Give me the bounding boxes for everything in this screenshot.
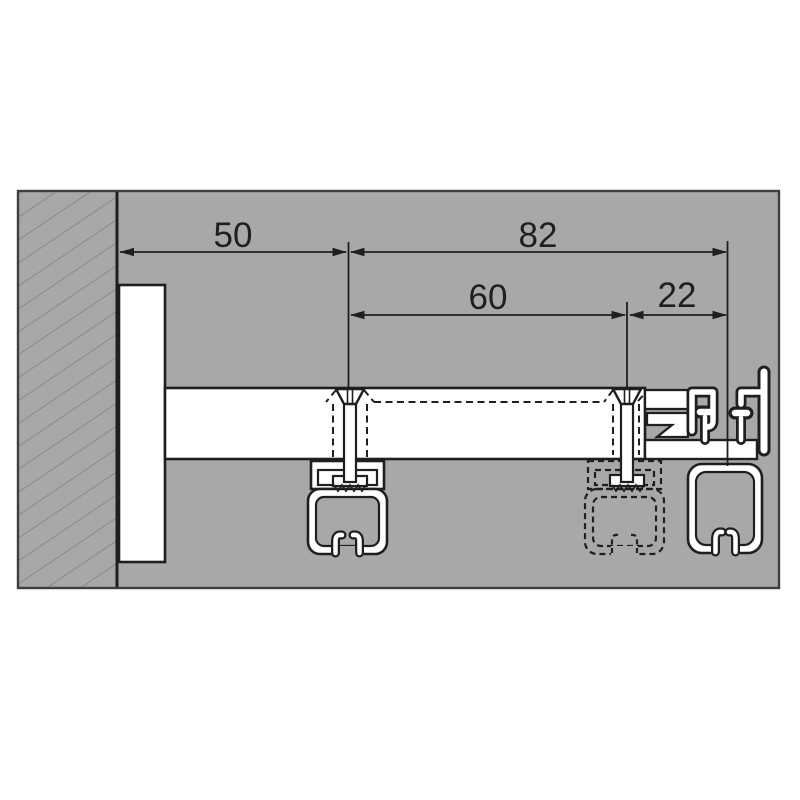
end-carrier-channel [688,464,762,556]
support-arm [165,388,645,459]
dim-label-60: 60 [469,278,508,317]
hatched-wall [19,192,117,587]
dim-label-22: 22 [658,276,697,315]
dim-label-82: 82 [519,216,558,255]
technical-drawing-page: 50 82 60 22 [0,0,800,800]
drawing-canvas: 50 82 60 22 [0,0,800,800]
dim-label-50: 50 [214,216,253,255]
wall-bracket-plate [119,285,165,562]
hidden-track-opening [611,546,638,557]
